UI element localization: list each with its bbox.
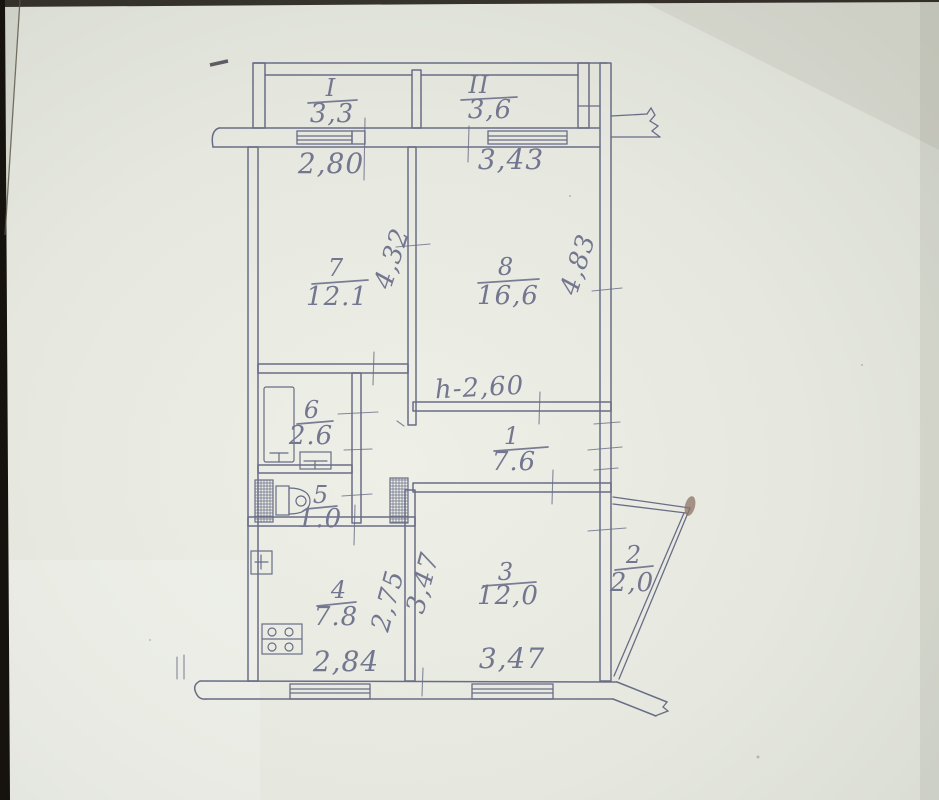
- balcony-i-area: 3,3: [310, 99, 354, 129]
- room6-area: 2.6: [288, 421, 333, 451]
- room3-area: 12,0: [477, 581, 539, 611]
- bottom-left-highlight: [0, 560, 260, 800]
- dim-top-right: 3,43: [478, 143, 544, 176]
- vent-shaft-wc: [255, 480, 273, 522]
- room7-area: 12.1: [306, 282, 368, 312]
- balcony-i-number: I: [325, 74, 336, 102]
- room2-number: 2: [625, 541, 642, 569]
- room8-area: 16,6: [477, 281, 539, 311]
- room7-number: 7: [328, 254, 344, 282]
- room8-number: 8: [498, 253, 514, 281]
- room5-area: 1.0: [298, 504, 342, 534]
- dim-bottom-left: 2,84: [312, 645, 379, 678]
- room6-number: 6: [304, 396, 320, 424]
- room4-number: 4: [330, 576, 347, 604]
- dim-top-left: 2,80: [297, 147, 364, 180]
- ceiling-height-note: h-2,60: [434, 371, 525, 406]
- dim-bottom-right: 3,47: [479, 642, 545, 675]
- vent-shaft-corridor: [390, 478, 408, 523]
- room1-area: 7.6: [492, 447, 536, 477]
- room4-area: 7.8: [314, 602, 358, 632]
- floor-plan-svg: I 3,3 II 3,6 7 12.1 8 16,6 6 2.6 5 1.0: [0, 0, 939, 800]
- room2-area: 2,0: [609, 568, 654, 598]
- room1-number: 1: [504, 422, 520, 450]
- scanned-floor-plan-photo: I 3,3 II 3,6 7 12.1 8 16,6 6 2.6 5 1.0: [0, 0, 939, 800]
- balcony-ii-area: 3,6: [468, 95, 512, 125]
